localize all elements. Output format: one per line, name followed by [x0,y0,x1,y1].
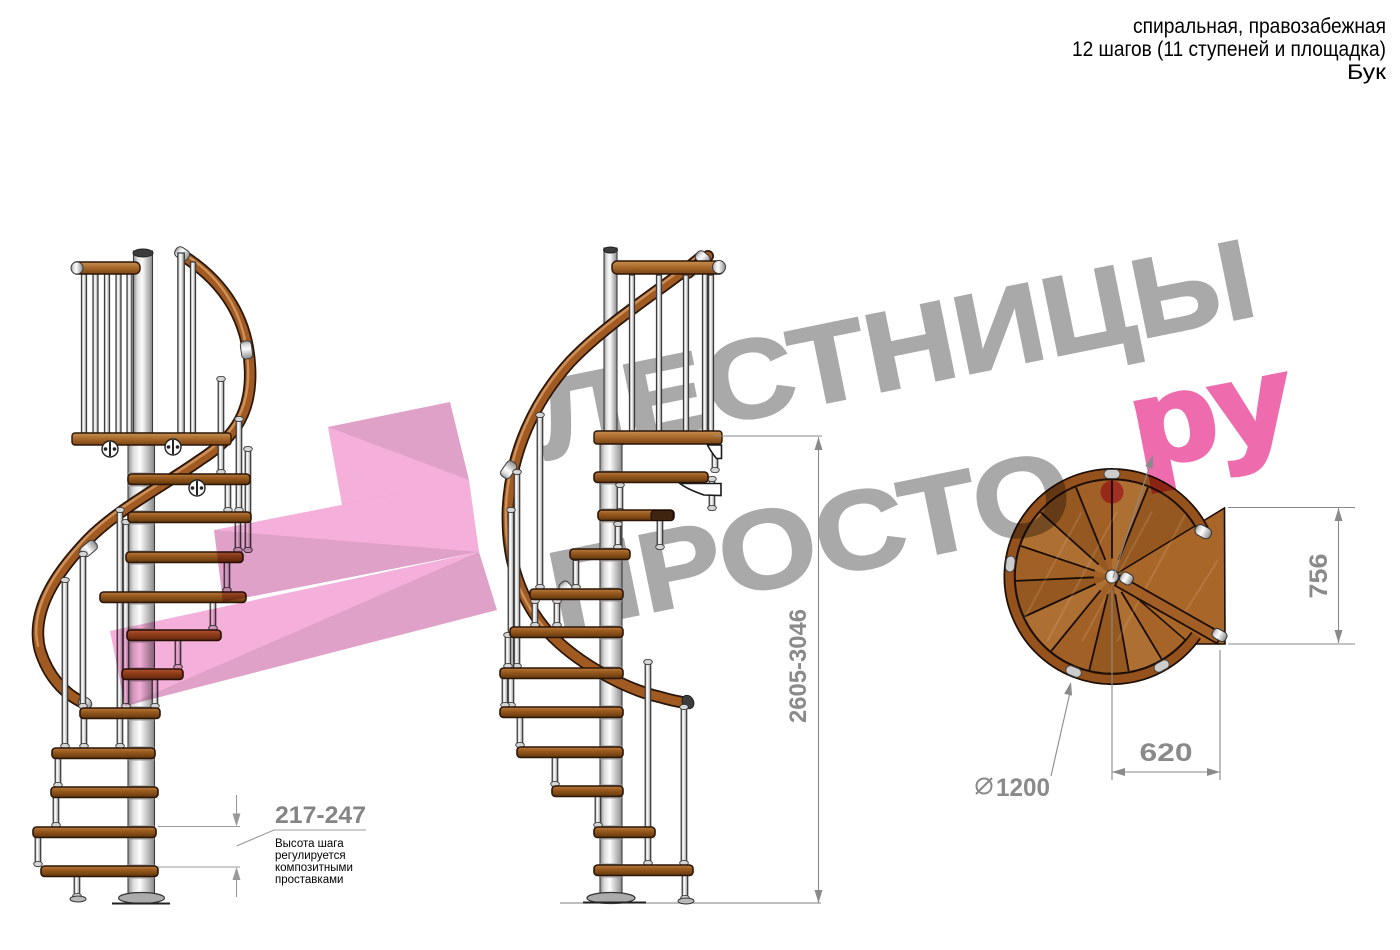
svg-text:217-247: 217-247 [275,802,366,829]
svg-text:композитными: композитными [275,862,353,874]
svg-text:756: 756 [1305,554,1333,599]
svg-text:620: 620 [1140,739,1193,767]
svg-text:1200: 1200 [996,774,1050,802]
svg-text:регулируется: регулируется [275,850,346,862]
svg-text:12 шагов (11 ступеней и площад: 12 шагов (11 ступеней и площадка) [1072,38,1386,61]
svg-text:проставками: проставками [275,874,343,886]
svg-text:Высота шага: Высота шага [275,838,344,850]
svg-text:спиральная, правозабежная: спиральная, правозабежная [1133,15,1386,38]
svg-text:2605-3046: 2605-3046 [785,609,812,723]
svg-text:Бук: Бук [1347,61,1387,84]
